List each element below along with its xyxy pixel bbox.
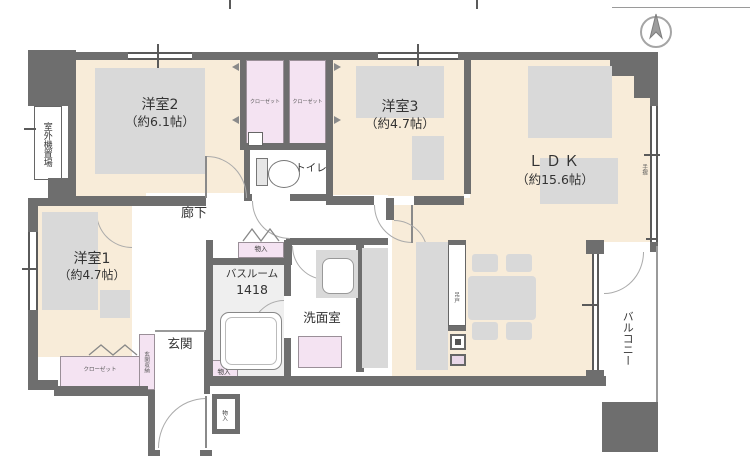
balcony-rail-line (656, 246, 658, 412)
bedroom1-desk (100, 290, 130, 318)
washroom-label: 洗面室 (290, 310, 354, 326)
wall-vestibule-bottom (148, 450, 160, 456)
ldk-rug (528, 66, 612, 138)
pipe-space-box (248, 132, 263, 146)
dining-table (468, 276, 536, 320)
balcony-label: バルコニー (620, 288, 634, 388)
compass-north-icon (632, 4, 680, 56)
wall-bedroom3-left (326, 58, 333, 205)
wall-bedroom2-left (68, 58, 76, 206)
bathtub-inner (225, 317, 277, 365)
folding-door-icon (242, 228, 280, 242)
wall-corner-bottomright (602, 402, 658, 452)
closet-door-arrow-icon (334, 116, 341, 124)
toilet-tank-icon (256, 158, 268, 186)
hallway-label: 廊下 (168, 206, 220, 223)
bedroom2-label: 洋室2 (105, 96, 215, 114)
wall-right (650, 96, 658, 106)
bedroom3-size-label: （約4.7帖） (352, 116, 448, 132)
closet-bedroom1-label: クローゼット (72, 367, 128, 374)
washing-machine-pad (298, 336, 342, 368)
wall-stub (284, 240, 292, 258)
bedroom1-size-label: （約4.7帖） (40, 268, 144, 284)
window-tick (582, 304, 598, 306)
wall-bottom-main (204, 376, 606, 386)
outdoor-unit-label: 室外機置場 (40, 110, 52, 178)
dimension-tick (24, 128, 36, 130)
bedroom1-label: 洋室1 (52, 250, 132, 268)
wall-washroom-top (286, 238, 388, 245)
kitchen-sink-box (450, 354, 466, 366)
wall-bottom-left (54, 386, 148, 396)
storage-hall-label: 物入 (248, 245, 274, 253)
entrance-step-line (155, 330, 205, 332)
storage-entrance-label: 物入 (212, 368, 236, 376)
window-bedroom1 (28, 232, 38, 310)
bedroom2-size-label: （約6.1帖） (98, 114, 222, 130)
kitchen-counter-cap (448, 240, 466, 245)
kitchen-counter (416, 242, 448, 370)
window-ldk-right (650, 106, 658, 242)
wall-closet-mid (284, 58, 289, 150)
wall-balcony-divider-bottom (586, 370, 604, 382)
entrance-storage-label: 玄関収納 (142, 338, 149, 386)
wall-bathroom-top (210, 258, 292, 265)
washroom-vanity (316, 250, 358, 298)
window-tick (22, 268, 36, 270)
folding-door-icon (88, 344, 140, 356)
dining-chair (472, 322, 498, 340)
dimension-tick (229, 0, 231, 9)
door-gap-toilet (252, 194, 290, 201)
wall-vestibule-bottom (200, 450, 212, 456)
window-tick (646, 238, 658, 240)
stove-burner-icon (455, 339, 461, 345)
closet-b-label: クローゼット (290, 99, 325, 106)
wall-balcony-divider-top (586, 240, 604, 254)
refrigerator-cabinet (362, 248, 388, 368)
kitchen-stove (450, 334, 466, 350)
wall-bedroom3-ldk (464, 58, 471, 194)
dimension-tick (476, 0, 478, 9)
door-leaf-bedroom2 (205, 156, 207, 198)
wall-vestibule-left (148, 390, 155, 452)
wall-closet-left (240, 58, 246, 150)
hanging-cabinet-label: 吊戸 (452, 284, 459, 310)
ldk-label: ＬＤＫ (505, 152, 605, 172)
closet-door-arrow-icon (334, 63, 341, 71)
door-leaf-entrance (205, 396, 207, 448)
bathtub-icon (220, 312, 282, 370)
door-gap-bedroom3 (374, 196, 414, 205)
dining-chair (506, 322, 532, 340)
dining-chair (472, 254, 498, 272)
kitchen-counter-cap (448, 326, 466, 331)
storage-outside-label: 物入 (220, 402, 227, 428)
closet-door-arrow-icon (232, 116, 239, 124)
closet-a-label: クローゼット (247, 99, 283, 106)
bedroom3-desk (412, 136, 444, 180)
dining-chair (506, 254, 532, 272)
window-tick (157, 44, 159, 70)
bathroom-label: バスルーム (214, 268, 290, 282)
bedroom3-label: 洋室3 (360, 98, 440, 116)
entrance-label: 玄関 (158, 336, 202, 352)
ldk-size-label: （約15.6帖） (496, 172, 614, 188)
handrail-label: 手摺 (640, 156, 647, 182)
window-bedroom2 (128, 52, 192, 60)
floor-plan: 洋室2 （約6.1帖） 洋室3 （約4.7帖） ＬＤＫ （約15.6帖） 洋室1… (0, 0, 750, 473)
wall-corner-topright (634, 52, 658, 98)
bathroom-size-label: 1418 (226, 282, 278, 298)
closet-door-arrow-icon (232, 63, 239, 71)
balcony-sliding-door (592, 254, 599, 370)
washbasin-icon (322, 258, 354, 294)
toilet-label: トイレ (292, 162, 330, 176)
